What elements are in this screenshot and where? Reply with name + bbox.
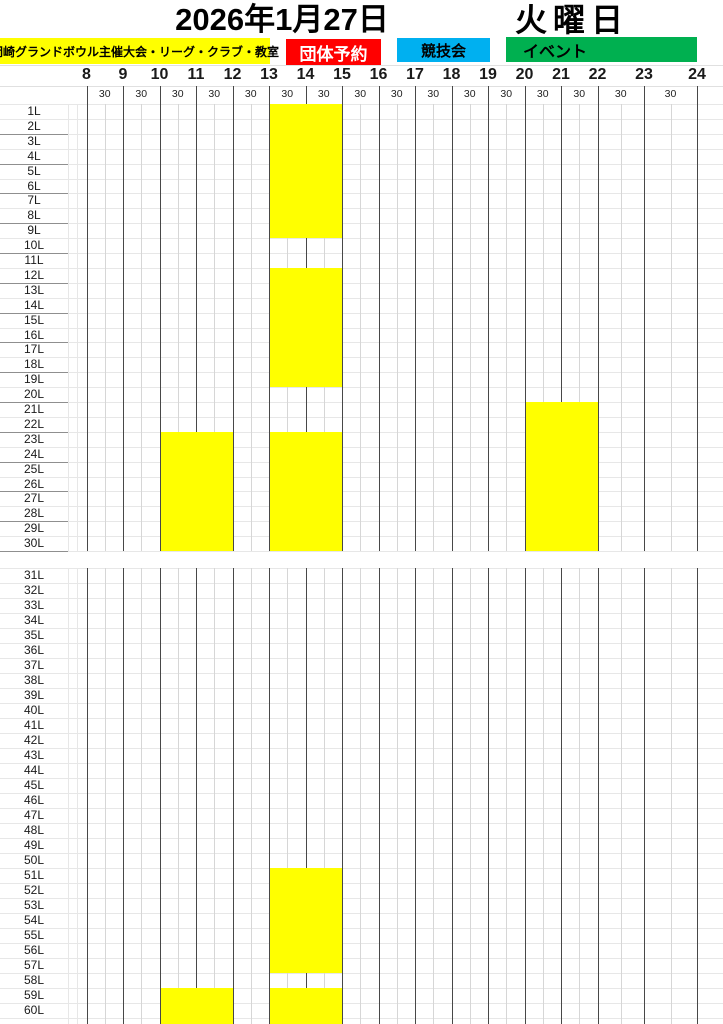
half-hour-line — [397, 104, 398, 551]
lane-label: 28L — [0, 506, 68, 521]
half-hour-label: 30 — [239, 87, 263, 102]
lane-label: 32L — [0, 583, 68, 598]
hour-line — [644, 86, 645, 551]
row-line — [0, 193, 723, 194]
row-line — [0, 703, 723, 704]
row-line — [0, 357, 723, 358]
row-line — [0, 491, 723, 492]
row-line — [0, 1003, 723, 1004]
half-hour-line — [251, 568, 252, 1024]
row-line — [0, 838, 723, 839]
hour-label: 16 — [361, 64, 397, 85]
label-column-line — [77, 568, 78, 1024]
row-line — [0, 104, 723, 105]
hour-line — [196, 568, 197, 1024]
hour-line — [598, 568, 599, 1024]
row-line — [0, 417, 723, 418]
row-line — [0, 943, 723, 944]
half-hour-line — [360, 104, 361, 551]
hour-label: 20 — [507, 64, 543, 85]
lane-label: 42L — [0, 733, 68, 748]
reservation-block — [270, 432, 342, 551]
lane-label: 47L — [0, 808, 68, 823]
half-hour-line — [178, 568, 179, 1024]
lane-label: 9L — [0, 223, 68, 238]
lane-label: 40L — [0, 703, 68, 718]
hour-line — [452, 568, 453, 1024]
hour-label: 24 — [679, 64, 715, 85]
hour-line — [488, 568, 489, 1024]
hour-line — [342, 568, 343, 1024]
lane-label: 56L — [0, 943, 68, 958]
label-column-line — [77, 104, 78, 551]
lane-label: 50L — [0, 853, 68, 868]
lane-label: 49L — [0, 838, 68, 853]
hour-label: 10 — [142, 64, 178, 85]
hour-label: 17 — [397, 64, 433, 85]
row-line — [0, 208, 723, 209]
lane-label: 4L — [0, 149, 68, 164]
lane-label: 27L — [0, 491, 68, 506]
lane-label: 52L — [0, 883, 68, 898]
hour-line — [87, 86, 88, 551]
hour-line — [87, 568, 88, 1024]
half-hour-line — [621, 568, 622, 1024]
hour-label: 21 — [543, 64, 579, 85]
reservation-block — [270, 268, 342, 387]
half-hour-label: 30 — [494, 87, 518, 102]
half-hour-label: 30 — [567, 87, 591, 102]
lane-label: 16L — [0, 328, 68, 343]
lane-label: 48L — [0, 823, 68, 838]
hour-line — [123, 568, 124, 1024]
row-line — [0, 551, 723, 552]
hour-label: 18 — [434, 64, 470, 85]
lane-label: 18L — [0, 357, 68, 372]
row-line — [0, 372, 723, 373]
lane-label: 6L — [0, 179, 68, 194]
hour-line — [488, 86, 489, 551]
lane-label: 7L — [0, 193, 68, 208]
lane-label: 45L — [0, 778, 68, 793]
lane-label: 39L — [0, 688, 68, 703]
lane-label: 53L — [0, 898, 68, 913]
row-line — [0, 179, 723, 180]
lane-label: 3L — [0, 134, 68, 149]
lane-label: 41L — [0, 718, 68, 733]
row-line — [0, 313, 723, 314]
row-line — [0, 568, 723, 569]
row-line — [0, 823, 723, 824]
row-line — [0, 134, 723, 135]
hour-line — [644, 568, 645, 1024]
lane-label: 11L — [0, 253, 68, 268]
lane-label: 10L — [0, 238, 68, 253]
half-hour-label: 30 — [202, 87, 226, 102]
lane-label: 55L — [0, 928, 68, 943]
half-hour-label: 30 — [609, 87, 633, 102]
half-hour-line — [433, 568, 434, 1024]
row-line — [0, 432, 723, 433]
half-hour-line — [543, 568, 544, 1024]
hour-label: 13 — [251, 64, 287, 85]
reservation-block — [161, 432, 233, 551]
hour-line — [233, 86, 234, 551]
lane-label: 30L — [0, 536, 68, 551]
row-line — [0, 447, 723, 448]
row-line — [0, 342, 723, 343]
half-hour-line — [141, 104, 142, 551]
row-line — [0, 778, 723, 779]
hour-line — [697, 568, 698, 1024]
row-line — [0, 958, 723, 959]
half-hour-line — [141, 568, 142, 1024]
half-hour-label: 30 — [458, 87, 482, 102]
half-hour-line — [671, 104, 672, 551]
half-hour-label: 30 — [421, 87, 445, 102]
row-line — [0, 149, 723, 150]
row-line — [0, 298, 723, 299]
hour-label: 12 — [215, 64, 251, 85]
lane-label: 38L — [0, 673, 68, 688]
reservation-block — [270, 868, 342, 973]
hour-label: 23 — [626, 64, 662, 85]
hour-label: 11 — [178, 64, 214, 85]
row-line — [0, 793, 723, 794]
row-line — [0, 506, 723, 507]
row-line — [0, 628, 723, 629]
lane-label: 57L — [0, 958, 68, 973]
half-hour-line — [397, 568, 398, 1024]
hour-label: 15 — [324, 64, 360, 85]
lane-label: 23L — [0, 432, 68, 447]
row-line — [0, 973, 723, 974]
hour-line — [525, 568, 526, 1024]
row-line — [0, 928, 723, 929]
half-hour-line — [671, 568, 672, 1024]
half-hour-line — [214, 568, 215, 1024]
half-hour-label: 30 — [659, 87, 683, 102]
lane-label: 46L — [0, 793, 68, 808]
row-line — [0, 718, 723, 719]
reservation-block — [526, 402, 598, 551]
half-hour-line — [506, 104, 507, 551]
lane-label: 8L — [0, 208, 68, 223]
lane-label: 37L — [0, 658, 68, 673]
row-line — [0, 898, 723, 899]
half-hour-line — [621, 104, 622, 551]
row-line — [0, 119, 723, 120]
half-hour-label: 30 — [348, 87, 372, 102]
lane-label: 54L — [0, 913, 68, 928]
lane-label: 24L — [0, 447, 68, 462]
hour-line — [233, 568, 234, 1024]
half-hour-label: 30 — [531, 87, 555, 102]
lane-label: 33L — [0, 598, 68, 613]
row-line — [0, 521, 723, 522]
lane-label: 26L — [0, 477, 68, 492]
hour-line — [561, 568, 562, 1024]
lane-label: 15L — [0, 313, 68, 328]
hour-line — [415, 568, 416, 1024]
row-line — [0, 913, 723, 914]
lane-label: 1L — [0, 104, 68, 119]
row-line — [0, 223, 723, 224]
row-line — [0, 883, 723, 884]
hour-line — [415, 86, 416, 551]
hour-label: 9 — [105, 64, 141, 85]
hour-line — [598, 86, 599, 551]
row-line — [0, 598, 723, 599]
hour-label: 8 — [69, 64, 105, 85]
row-line — [0, 164, 723, 165]
lane-label: 60L — [0, 1003, 68, 1018]
schedule-grid: 1L2L3L4L5L6L7L8L9L10L11L12L13L14L15L16L1… — [0, 0, 723, 1024]
hour-line — [452, 86, 453, 551]
half-hour-line — [360, 568, 361, 1024]
row-line — [0, 268, 723, 269]
lane-label: 36L — [0, 643, 68, 658]
row-line — [0, 733, 723, 734]
row-line — [0, 808, 723, 809]
hour-line — [123, 86, 124, 551]
lane-label: 5L — [0, 164, 68, 179]
hour-line — [697, 86, 698, 551]
row-line — [0, 673, 723, 674]
reservation-block — [270, 104, 342, 238]
reservation-block — [270, 988, 342, 1024]
lane-label: 17L — [0, 342, 68, 357]
half-hour-label: 30 — [312, 87, 336, 102]
hour-line — [160, 568, 161, 1024]
half-hour-line — [579, 568, 580, 1024]
row-line — [0, 763, 723, 764]
lane-schedule-page: 2026年1月27日 火曜日 岡崎グランドボウル主催大会・リーグ・クラブ・教室 … — [0, 0, 723, 1024]
lane-label: 31L — [0, 568, 68, 583]
row-line — [0, 688, 723, 689]
label-column-line — [68, 568, 69, 1024]
lane-label: 34L — [0, 613, 68, 628]
row-line — [0, 328, 723, 329]
half-hour-line — [470, 104, 471, 551]
hour-line — [379, 568, 380, 1024]
lane-label: 59L — [0, 988, 68, 1003]
row-line — [0, 643, 723, 644]
lane-label: 35L — [0, 628, 68, 643]
hour-label: 19 — [470, 64, 506, 85]
row-line — [0, 253, 723, 254]
row-line — [0, 402, 723, 403]
lane-label: 43L — [0, 748, 68, 763]
row-line — [0, 988, 723, 989]
half-hour-line — [251, 104, 252, 551]
row-line — [0, 238, 723, 239]
row-line — [0, 583, 723, 584]
lane-label: 25L — [0, 462, 68, 477]
reservation-block — [161, 988, 233, 1024]
lane-label: 44L — [0, 763, 68, 778]
lane-label: 51L — [0, 868, 68, 883]
hour-line — [379, 86, 380, 551]
half-hour-label: 30 — [93, 87, 117, 102]
lane-label: 13L — [0, 283, 68, 298]
row-line — [0, 658, 723, 659]
half-hour-line — [506, 568, 507, 1024]
lane-label: 19L — [0, 372, 68, 387]
hour-line — [342, 86, 343, 551]
row-line — [0, 1018, 723, 1019]
half-hour-label: 30 — [275, 87, 299, 102]
lane-label: 2L — [0, 119, 68, 134]
row-line — [0, 868, 723, 869]
row-line — [0, 853, 723, 854]
row-line — [0, 387, 723, 388]
half-hour-line — [105, 568, 106, 1024]
row-line — [0, 748, 723, 749]
row-line — [0, 462, 723, 463]
half-hour-line — [470, 568, 471, 1024]
row-line — [0, 283, 723, 284]
lane-group-divider — [0, 551, 68, 552]
lane-label: 22L — [0, 417, 68, 432]
lane-label: 21L — [0, 402, 68, 417]
half-hour-label: 30 — [166, 87, 190, 102]
lane-label: 58L — [0, 973, 68, 988]
label-column-line — [68, 104, 69, 551]
lane-label: 12L — [0, 268, 68, 283]
row-line — [0, 613, 723, 614]
row-line — [0, 477, 723, 478]
half-hour-label: 30 — [129, 87, 153, 102]
hour-label: 14 — [288, 64, 324, 85]
lane-label: 29L — [0, 521, 68, 536]
lane-label: 20L — [0, 387, 68, 402]
lane-label: 14L — [0, 298, 68, 313]
half-hour-label: 30 — [385, 87, 409, 102]
half-hour-line — [105, 104, 106, 551]
hour-label: 22 — [580, 64, 616, 85]
half-hour-line — [433, 104, 434, 551]
row-line — [0, 536, 723, 537]
